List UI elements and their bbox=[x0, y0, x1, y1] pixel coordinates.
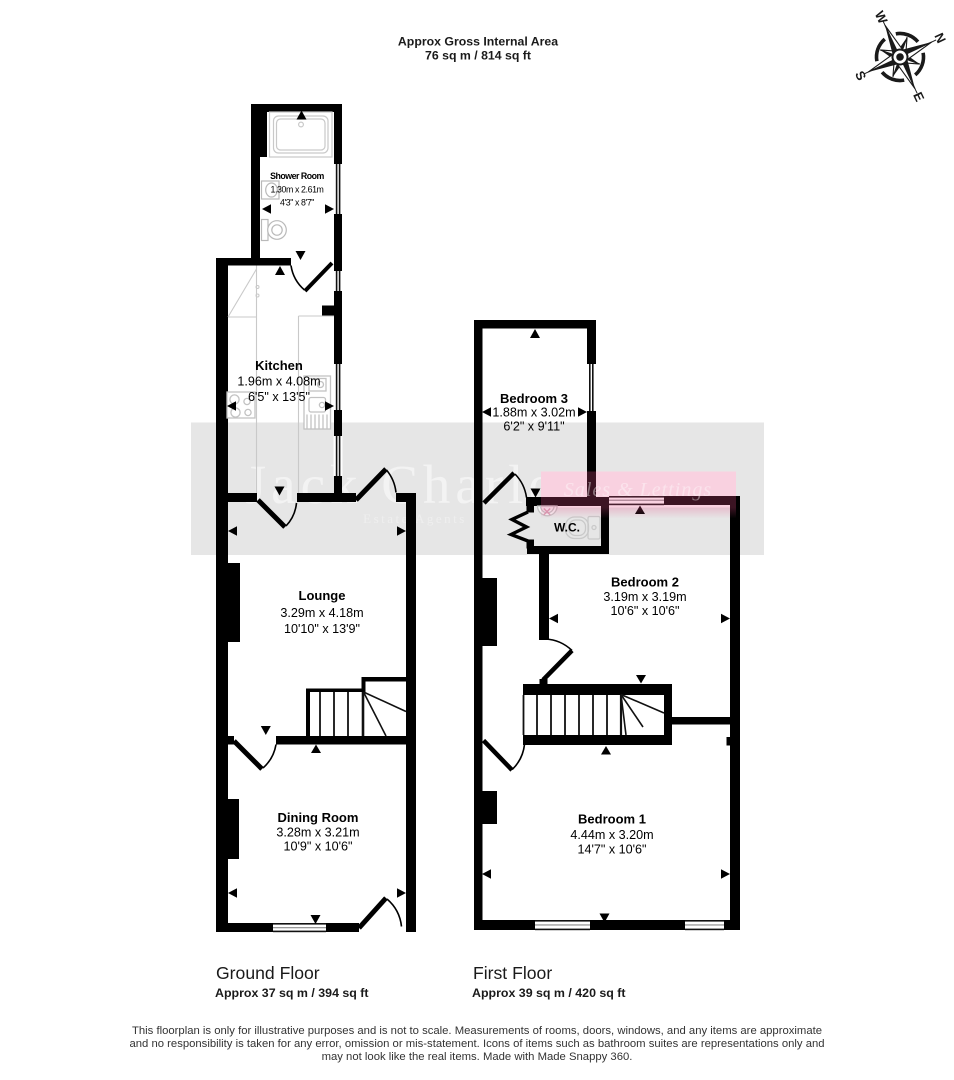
svg-text:76 sq m / 814 sq ft: 76 sq m / 814 sq ft bbox=[425, 49, 531, 63]
svg-text:1.30m x 2.61m: 1.30m x 2.61m bbox=[271, 185, 324, 195]
svg-text:Bedroom 3: Bedroom 3 bbox=[500, 391, 568, 406]
svg-text:Lounge: Lounge bbox=[299, 588, 346, 603]
svg-text:and no responsibility is taken: and no responsibility is taken for any e… bbox=[129, 1038, 824, 1050]
svg-text:10'6" x 10'6": 10'6" x 10'6" bbox=[610, 604, 679, 618]
svg-text:Kitchen: Kitchen bbox=[255, 358, 303, 373]
svg-text:Sales & Lettings: Sales & Lettings bbox=[564, 479, 712, 501]
svg-text:Approx 39 sq m / 420 sq ft: Approx 39 sq m / 420 sq ft bbox=[472, 986, 626, 1000]
svg-text:3.19m x 3.19m: 3.19m x 3.19m bbox=[603, 590, 686, 604]
svg-text:may not look like the real ite: may not look like the real items. Made w… bbox=[322, 1051, 633, 1063]
svg-text:1.96m x 4.08m: 1.96m x 4.08m bbox=[237, 375, 320, 389]
svg-text:Approx Gross Internal Area: Approx Gross Internal Area bbox=[398, 35, 558, 49]
svg-text:First Floor: First Floor bbox=[473, 963, 552, 983]
svg-text:Shower Room: Shower Room bbox=[270, 171, 324, 181]
svg-text:Dining Room: Dining Room bbox=[278, 810, 359, 825]
svg-text:4.44m x 3.20m: 4.44m x 3.20m bbox=[570, 828, 653, 842]
svg-text:4'3" x 8'7": 4'3" x 8'7" bbox=[280, 198, 314, 208]
svg-text:Approx 37 sq m / 394 sq ft: Approx 37 sq m / 394 sq ft bbox=[215, 986, 369, 1000]
svg-text:14'7" x 10'6": 14'7" x 10'6" bbox=[577, 843, 646, 857]
svg-text:This floorplan is only for ill: This floorplan is only for illustrative … bbox=[132, 1025, 822, 1037]
svg-text:10'10" x 13'9": 10'10" x 13'9" bbox=[284, 622, 360, 636]
svg-text:1.88m x 3.02m: 1.88m x 3.02m bbox=[492, 406, 575, 420]
svg-text:Ground Floor: Ground Floor bbox=[216, 963, 320, 983]
svg-text:W.C.: W.C. bbox=[554, 521, 580, 535]
svg-text:3.29m x 4.18m: 3.29m x 4.18m bbox=[280, 606, 363, 620]
svg-text:6'2" x 9'11": 6'2" x 9'11" bbox=[503, 420, 564, 434]
svg-text:Bedroom 1: Bedroom 1 bbox=[578, 812, 646, 827]
svg-text:Bedroom 2: Bedroom 2 bbox=[611, 575, 679, 590]
svg-text:3.28m x 3.21m: 3.28m x 3.21m bbox=[276, 826, 359, 840]
svg-text:6'5" x 13'5": 6'5" x 13'5" bbox=[248, 390, 310, 404]
svg-text:10'9" x 10'6": 10'9" x 10'6" bbox=[283, 840, 352, 854]
